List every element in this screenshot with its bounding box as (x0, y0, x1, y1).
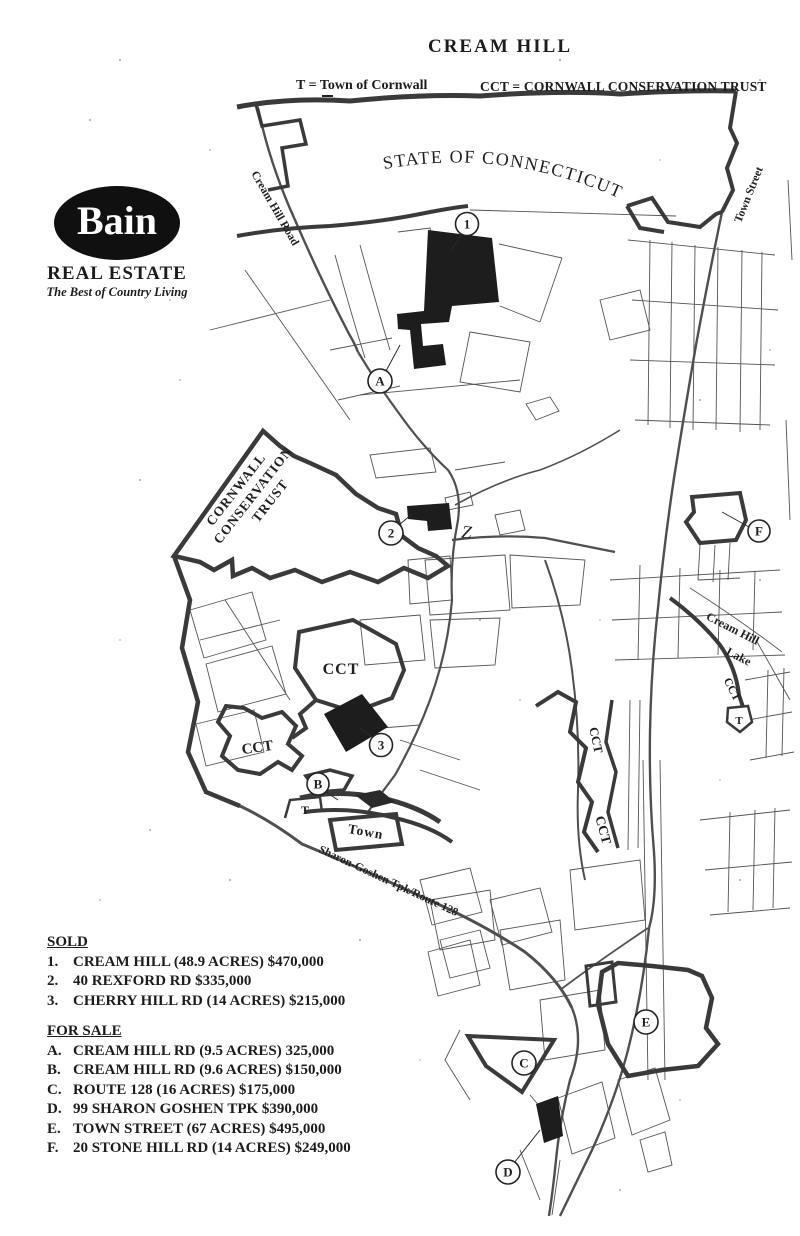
for-sale-item-d-desc: 99 SHARON GOSHEN TPK $390,000 (73, 1100, 318, 1120)
cct-hexagon-label: CCT (323, 661, 360, 678)
middle-road (545, 560, 585, 880)
marker-C: C (512, 1051, 536, 1075)
town-street-line (649, 212, 722, 928)
t-lake-label: T (735, 715, 743, 727)
cct-west-label: CCT (241, 738, 275, 758)
for-sale-heading: FOR SALE (47, 1022, 351, 1042)
parcel-c-outline (468, 1036, 554, 1092)
tpk-branch (560, 928, 648, 990)
cream-hill-lake-label-2: Lake (724, 644, 754, 669)
z-mark: Z (461, 522, 474, 543)
marker-1: 1 (456, 213, 479, 236)
svg-text:A: A (375, 374, 385, 389)
scanned-map-page: STATE OF CONNECTICUT Cream Hill Road Tow… (0, 0, 800, 1236)
for-sale-item-d-num: D. (47, 1100, 73, 1120)
sold-item-2-num: 2. (47, 972, 73, 992)
for-sale-item-d: D. 99 SHARON GOSHEN TPK $390,000 (47, 1100, 351, 1120)
legend-cct: CCT = CORNWALL CONSERVATION TRUST (480, 79, 767, 95)
marker-F: F (748, 520, 770, 542)
page-title: CREAM HILL (428, 36, 572, 58)
sold-parcels (324, 230, 563, 1143)
for-sale-item-f: F. 20 STONE HILL RD (14 ACRES) $249,000 (47, 1139, 351, 1159)
for-sale-item-a: A. CREAM HILL RD (9.5 ACRES) 325,000 (47, 1042, 351, 1062)
sold-parcel-1 (397, 230, 499, 369)
t-town-label: T (301, 803, 309, 817)
listings-block: SOLD 1. CREAM HILL (48.9 ACRES) $470,000… (47, 933, 351, 1159)
for-sale-item-e-num: E. (47, 1120, 73, 1140)
sold-parcel-2 (407, 503, 452, 531)
sold-item-1: 1. CREAM HILL (48.9 ACRES) $470,000 (47, 953, 351, 973)
sold-item-3: 3. CHERRY HILL RD (14 ACRES) $215,000 (47, 992, 351, 1012)
parcel-f-outline (686, 493, 746, 543)
sold-item-2: 2. 40 REXFORD RD $335,000 (47, 972, 351, 992)
sold-item-3-num: 3. (47, 992, 73, 1012)
cct-east-strip-1 (536, 692, 598, 852)
bain-logo-name: Bain (77, 201, 157, 245)
for-sale-item-c: C. ROUTE 128 (16 ACRES) $175,000 (47, 1081, 351, 1101)
sold-list: SOLD 1. CREAM HILL (48.9 ACRES) $470,000… (47, 933, 351, 1011)
for-sale-item-f-desc: 20 STONE HILL RD (14 ACRES) $249,000 (73, 1139, 351, 1159)
legend-town-underline (322, 95, 333, 97)
town-area-label: Town (347, 821, 385, 842)
for-sale-list: FOR SALE A. CREAM HILL RD (9.5 ACRES) 32… (47, 1022, 351, 1159)
for-sale-item-a-num: A. (47, 1042, 73, 1062)
marker-E: E (634, 1010, 658, 1034)
for-sale-item-e: E. TOWN STREET (67 ACRES) $495,000 (47, 1120, 351, 1140)
marker-2: 2 (379, 521, 403, 545)
svg-text:B: B (314, 777, 323, 792)
cream-hill-road-label: Cream Hill Road (248, 169, 301, 248)
svg-text:C: C (519, 1056, 528, 1071)
for-sale-item-b-num: B. (47, 1061, 73, 1081)
for-sale-item-f-num: F. (47, 1139, 73, 1159)
sold-item-1-desc: CREAM HILL (48.9 ACRES) $470,000 (73, 953, 324, 973)
svg-text:3: 3 (378, 738, 385, 753)
sold-item-1-num: 1. (47, 953, 73, 973)
state-of-connecticut-label: STATE OF CONNECTICUT (381, 146, 626, 202)
marker-A: A (368, 369, 392, 393)
west-boundary (174, 556, 240, 806)
road-to-northeast (455, 430, 620, 505)
svg-text:F: F (755, 524, 763, 539)
for-sale-item-b-desc: CREAM HILL RD (9.6 ACRES) $150,000 (73, 1061, 342, 1081)
for-sale-item-b: B. CREAM HILL RD (9.6 ACRES) $150,000 (47, 1061, 351, 1081)
marker-D: D (496, 1160, 520, 1184)
sold-heading: SOLD (47, 933, 351, 953)
sharon-goshen-label: Sharon-Goshen Tpk/Route 128 (317, 844, 460, 919)
marker-B: B (307, 773, 329, 795)
bain-logo-tagline: The Best of Country Living (46, 285, 188, 300)
legend-town: T = Town of Cornwall (296, 78, 427, 94)
sold-item-3-desc: CHERRY HILL RD (14 ACRES) $215,000 (73, 992, 345, 1012)
cct-east-label-1: CCT (586, 726, 605, 755)
sold-item-2-desc: 40 REXFORD RD $335,000 (73, 972, 251, 992)
marker-3: 3 (370, 734, 393, 757)
for-sale-item-c-num: C. (47, 1081, 73, 1101)
bain-logo-real-estate: REAL ESTATE (46, 263, 188, 285)
bain-logo: Bain REAL ESTATE The Best of Country Liv… (46, 186, 188, 300)
svg-text:1: 1 (464, 217, 471, 232)
northeast-boundary (722, 91, 737, 212)
svg-text:2: 2 (388, 526, 395, 541)
town-street-label: Town Street (733, 165, 766, 224)
bain-logo-oval: Bain (54, 186, 180, 260)
cross-road-east (452, 536, 615, 552)
cornwall-conservation-trust-label: CORNWALL CONSERVATION TRUST (197, 433, 309, 557)
for-sale-item-c-desc: ROUTE 128 (16 ACRES) $175,000 (73, 1081, 295, 1101)
svg-text:E: E (642, 1015, 651, 1030)
for-sale-item-e-desc: TOWN STREET (67 ACRES) $495,000 (73, 1120, 325, 1140)
for-sale-item-a-desc: CREAM HILL RD (9.5 ACRES) 325,000 (73, 1042, 334, 1062)
svg-text:D: D (503, 1165, 512, 1180)
